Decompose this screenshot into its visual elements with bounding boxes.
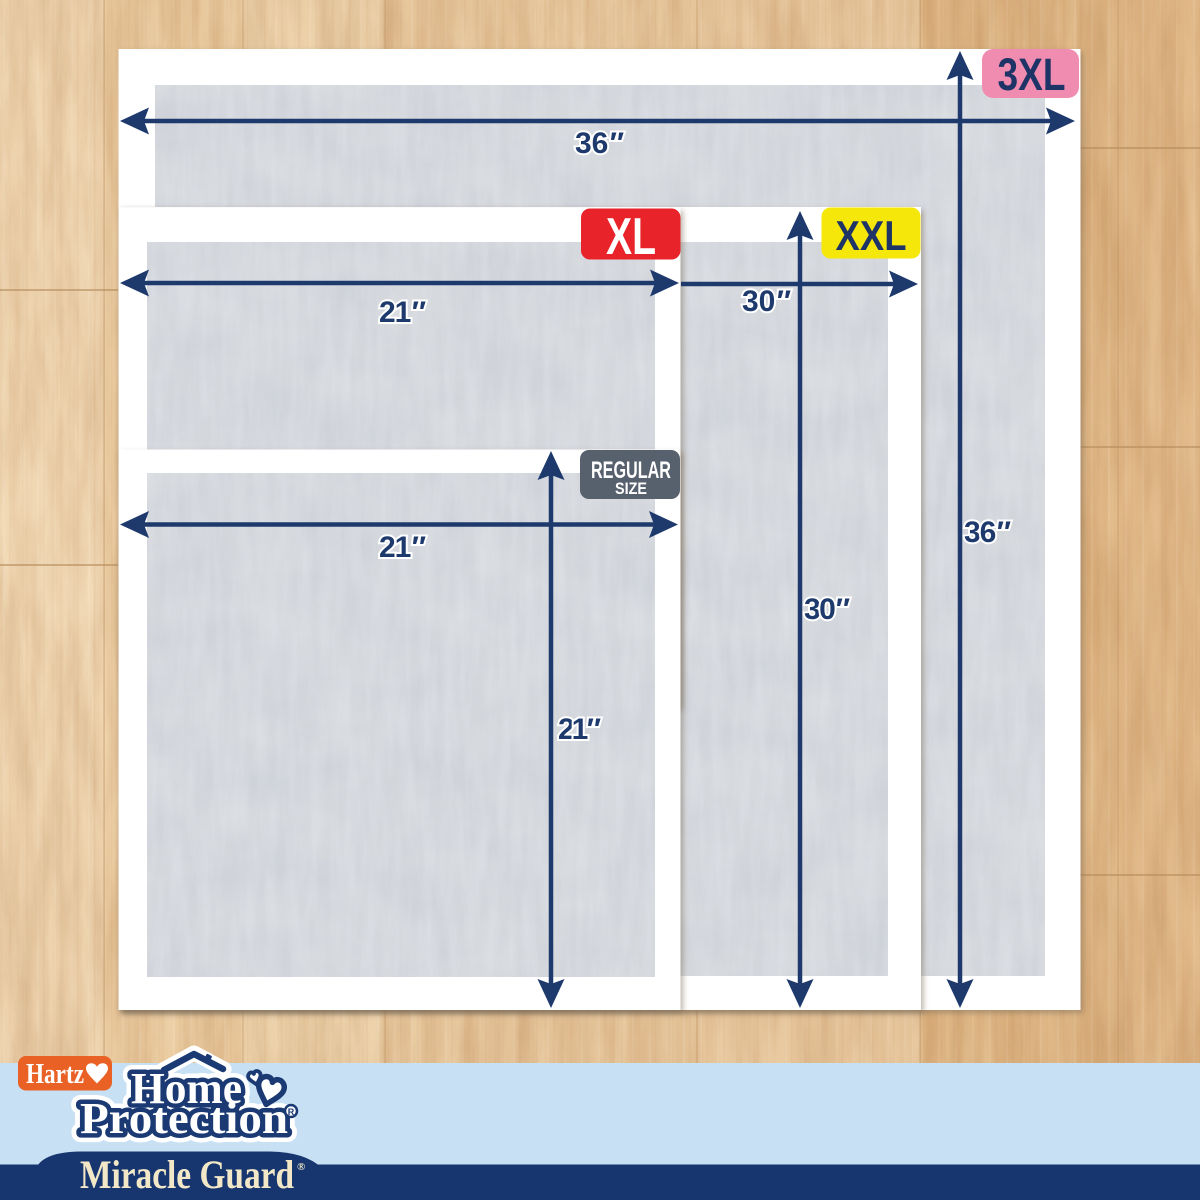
svg-text:R: R	[288, 1107, 295, 1117]
svg-text:®: ®	[297, 1161, 305, 1173]
svg-text:30″: 30″	[742, 285, 791, 318]
svg-text:Hartz: Hartz	[26, 1058, 84, 1090]
svg-text:XL: XL	[606, 208, 656, 266]
svg-text:36″: 36″	[575, 127, 624, 160]
svg-text:Protection: Protection	[80, 1094, 288, 1143]
svg-text:Miracle Guard: Miracle Guard	[80, 1152, 294, 1197]
svg-text:SIZE: SIZE	[615, 479, 647, 498]
svg-text:21″: 21″	[558, 713, 601, 746]
svg-text:21″: 21″	[379, 296, 426, 329]
svg-text:30″: 30″	[804, 593, 850, 626]
svg-text:3XL: 3XL	[998, 49, 1066, 100]
svg-text:XXL: XXL	[836, 212, 907, 259]
svg-text:36″: 36″	[964, 516, 1011, 549]
svg-text:21″: 21″	[379, 531, 426, 564]
